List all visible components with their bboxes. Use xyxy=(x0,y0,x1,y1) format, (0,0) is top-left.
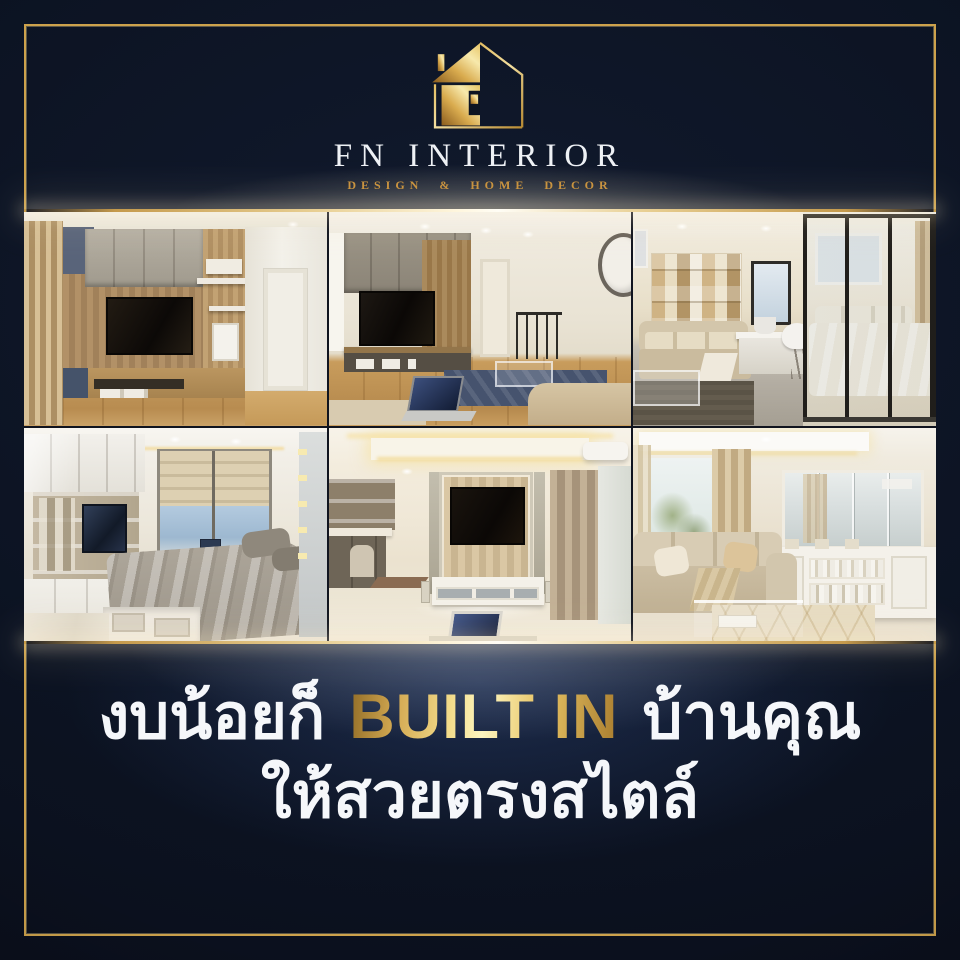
brand-tagline: DESIGN & HOME DECOR xyxy=(0,178,960,193)
laptop-screen xyxy=(407,376,465,412)
white-door xyxy=(263,268,308,392)
right-floor xyxy=(245,391,327,425)
ceiling-cove-panel xyxy=(639,432,869,451)
wardrobe-upper xyxy=(24,434,145,492)
window xyxy=(751,261,790,325)
curtain xyxy=(550,470,598,619)
ceiling-downlight xyxy=(480,227,492,234)
open-shelf-books xyxy=(809,558,885,579)
candle-lantern xyxy=(421,581,430,602)
console-shelf-gap xyxy=(94,379,185,390)
shelf-bar xyxy=(209,306,248,311)
open-drawer xyxy=(154,618,190,637)
storage-baskets xyxy=(100,389,148,398)
bar-shelves xyxy=(329,479,396,530)
shelf-items xyxy=(206,259,242,274)
console-drawers xyxy=(436,587,539,601)
console-navy-panel xyxy=(63,368,87,398)
chair-legs xyxy=(791,349,803,379)
glass-coffee-table xyxy=(633,370,700,406)
partition-frame-bar xyxy=(803,214,807,421)
ceiling-downlight xyxy=(419,223,431,230)
shelf-bar xyxy=(197,278,248,284)
stair-railing xyxy=(516,312,561,359)
sofa-cushions xyxy=(645,332,742,351)
partition-frame-bar xyxy=(888,214,892,421)
brand-header: FN INTERIOR DESIGN & HOME DECOR xyxy=(0,40,960,193)
sofa-corner xyxy=(528,383,631,426)
brand-name: FN INTERIOR xyxy=(0,138,960,175)
partition-frame-top xyxy=(803,214,936,217)
window-mullion xyxy=(212,451,216,551)
laptop-keyboard xyxy=(402,411,477,421)
bar-chair xyxy=(350,545,374,577)
console-top-decor xyxy=(785,539,876,550)
wall-art xyxy=(633,229,648,267)
tv-screen xyxy=(359,291,435,347)
headline-line1-prefix: งบน้อยก็ xyxy=(98,676,325,759)
ceiling-downlight xyxy=(287,221,299,228)
partition-frame-bar xyxy=(845,214,849,421)
mirror-reflection-curtain xyxy=(803,474,827,542)
headline: งบน้อยก็ BUILT IN บ้านคุณ ให้สวยตรงสไตล์ xyxy=(0,676,960,833)
picture-frames xyxy=(212,323,239,361)
ceiling-cove-glow xyxy=(377,457,583,460)
partition-track xyxy=(803,417,936,422)
vanity-bulbs xyxy=(298,449,307,577)
gallery-photo-condo-bedroom-partition xyxy=(633,212,936,426)
bar-counter-top xyxy=(329,528,393,537)
gallery-photo-bedroom-city-view xyxy=(24,428,327,642)
tv-screen xyxy=(82,504,127,553)
headline-line1-highlight: BUILT IN xyxy=(349,676,618,759)
sheer-panel xyxy=(598,466,631,624)
mirror-pilaster xyxy=(429,472,439,594)
shelf-decor xyxy=(39,498,75,571)
gallery-photo-living-tv-wall xyxy=(24,212,327,426)
partition-frame-bar xyxy=(930,214,936,421)
headline-line1-suffix: บ้านคุณ xyxy=(642,676,861,759)
floor-marble xyxy=(24,613,109,641)
open-drawer xyxy=(112,613,145,632)
ice-bucket xyxy=(754,317,775,334)
mirror-reflection-ac xyxy=(882,479,912,490)
gallery-photo-classic-living-tv xyxy=(329,428,632,642)
window-sliver xyxy=(329,233,344,350)
tv-screen xyxy=(106,297,194,355)
poster-canvas: FN INTERIOR DESIGN & HOME DECOR xyxy=(0,0,960,960)
photo-gallery xyxy=(24,212,936,641)
ceiling-cove-panel xyxy=(371,438,589,459)
gallery-photo-living-laptop xyxy=(329,212,632,426)
upper-cabinets xyxy=(85,229,203,287)
accent-cushion xyxy=(652,544,690,577)
air-conditioner xyxy=(583,442,628,459)
glass-tint xyxy=(803,212,936,426)
curtain xyxy=(24,221,63,426)
open-shelf-books xyxy=(809,583,885,604)
house-logo-icon xyxy=(420,40,540,134)
tv-screen xyxy=(450,487,526,545)
top-divider-line xyxy=(24,209,936,212)
headline-line1: งบน้อยก็ BUILT IN บ้านคุณ xyxy=(0,676,960,759)
storage-baskets xyxy=(356,359,417,369)
gallery-photo-classic-living-mirror xyxy=(633,428,936,642)
mirror-pilaster xyxy=(534,472,544,594)
hallway-door xyxy=(480,259,510,357)
headline-line2: ให้สวยตรงสไตล์ xyxy=(0,759,960,833)
ceiling-downlight xyxy=(230,438,242,445)
bottom-divider-line xyxy=(24,641,936,644)
ceiling-downlight xyxy=(676,223,688,230)
table-tray xyxy=(718,615,757,628)
cabinet-door xyxy=(891,556,927,609)
